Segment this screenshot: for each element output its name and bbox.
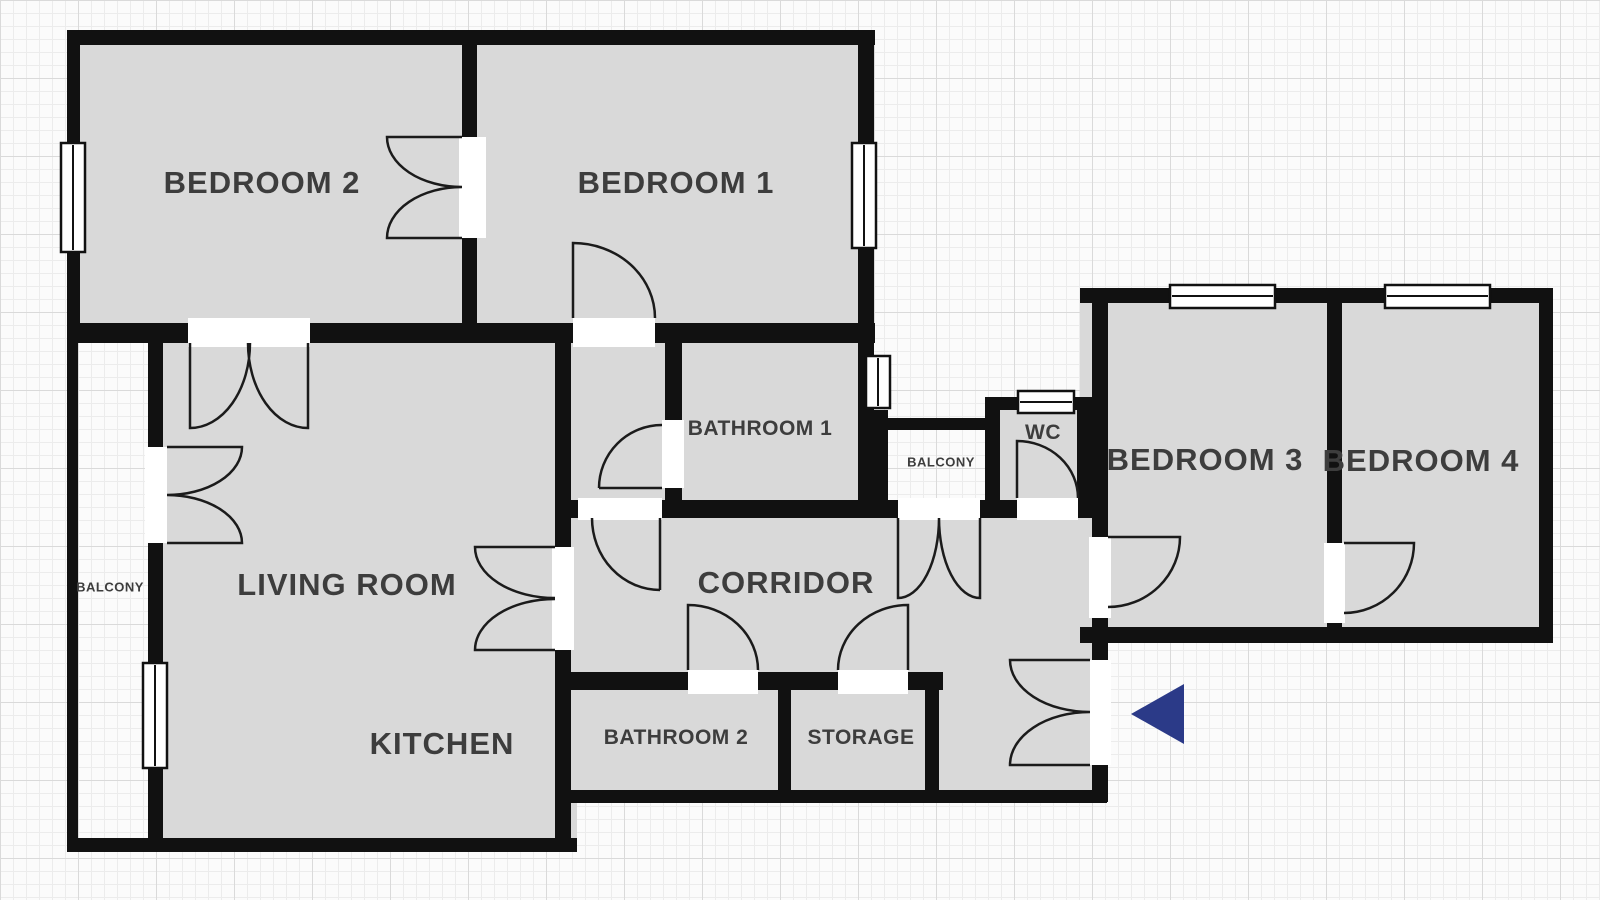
floor-plan: BEDROOM 2 BEDROOM 1 BATHROOM 1 BALCONY W… xyxy=(0,0,1600,900)
room-label-bedroom-3: BEDROOM 3 xyxy=(1107,442,1304,478)
window-bedroom-1 xyxy=(852,143,876,248)
window-bedroom-4 xyxy=(1385,285,1490,308)
room-label-bedroom-4: BEDROOM 4 xyxy=(1323,443,1520,479)
room-label-corridor: CORRIDOR xyxy=(698,565,875,601)
window-living-room xyxy=(143,663,167,768)
room-label-wc: WC xyxy=(1025,421,1061,445)
window-wc xyxy=(1018,391,1074,413)
room-label-bedroom-2: BEDROOM 2 xyxy=(164,165,361,201)
window-bathroom-1 xyxy=(866,356,890,408)
room-label-storage: STORAGE xyxy=(808,726,915,750)
window-bedroom-3 xyxy=(1170,285,1275,308)
window-bedroom-2 xyxy=(61,143,85,252)
room-label-balcony-middle: BALCONY xyxy=(907,455,975,470)
entrance-arrow-icon xyxy=(1131,684,1184,744)
room-label-bedroom-1: BEDROOM 1 xyxy=(578,165,775,201)
room-label-living-room: LIVING ROOM xyxy=(237,567,456,603)
room-label-balcony-left: BALCONY xyxy=(76,580,144,595)
room-label-bathroom-1: BATHROOM 1 xyxy=(688,417,833,441)
room-label-kitchen: KITCHEN xyxy=(370,726,515,762)
room-label-bathroom-2: BATHROOM 2 xyxy=(604,726,749,750)
